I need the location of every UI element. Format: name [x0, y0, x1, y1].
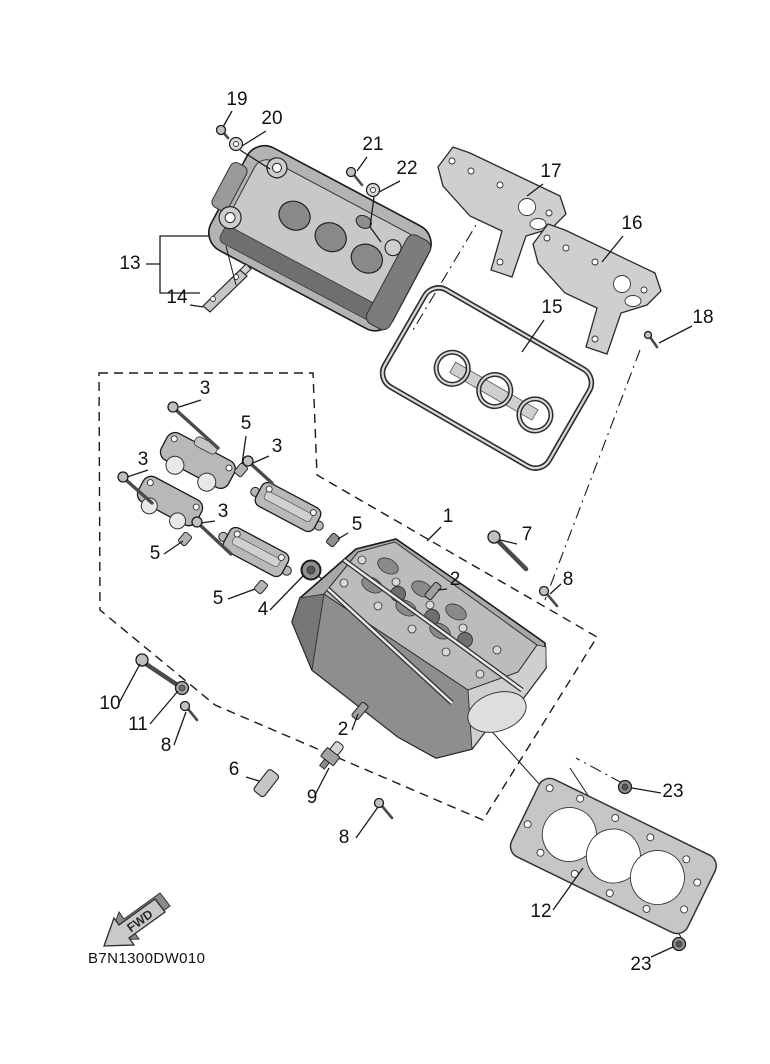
- leader-3c: [127, 470, 148, 477]
- bracket-part: [203, 264, 251, 312]
- callout-8c: 8: [339, 827, 350, 848]
- bolt-8b: [181, 702, 198, 721]
- callout-19: 19: [226, 89, 247, 110]
- washer-20: [230, 138, 243, 151]
- leader-18: [659, 326, 692, 343]
- callout-11: 11: [128, 714, 148, 735]
- centerline: [576, 758, 622, 783]
- bolt-boss: [392, 578, 400, 586]
- callout-18: 18: [692, 307, 713, 328]
- callout-17: 17: [540, 161, 561, 182]
- bolt-10: [136, 654, 176, 684]
- heat-shield-plate-16: [533, 224, 661, 354]
- bolt-boss: [476, 670, 484, 678]
- callout-8a: 8: [563, 569, 574, 590]
- callout-22: 22: [396, 158, 417, 179]
- leader-6: [246, 777, 259, 781]
- dowel-pin-5d: [254, 580, 269, 595]
- callout-16: 16: [621, 213, 642, 234]
- head-bolt-7: [488, 531, 526, 569]
- callout-3d: 3: [218, 501, 229, 522]
- cam-cap-c: [246, 477, 330, 538]
- bolt-boss: [442, 648, 450, 656]
- bolt-boss: [459, 624, 467, 632]
- callout-5a: 5: [241, 413, 252, 434]
- bolt-boss: [426, 601, 434, 609]
- leader-8a: [550, 584, 561, 594]
- callout-23a: 23: [662, 781, 683, 802]
- leader-3d: [201, 521, 215, 523]
- leader-5b: [338, 533, 348, 539]
- dowel-pin-5b: [326, 533, 341, 548]
- callout-13: 13: [119, 253, 140, 274]
- callout-8b: 8: [161, 735, 172, 756]
- washer-22: [367, 184, 380, 197]
- leader-8c: [356, 807, 378, 838]
- callout-9: 9: [307, 787, 318, 808]
- leader-20: [242, 131, 266, 146]
- callout-5b: 5: [352, 514, 363, 535]
- gasket-band: [450, 362, 538, 420]
- callout-23b: 23: [630, 954, 651, 975]
- callout-2b: 2: [338, 719, 349, 740]
- bracket-hole: [211, 297, 216, 302]
- callout-21: 21: [362, 134, 383, 155]
- leader-3b: [253, 456, 269, 463]
- leader-14: [190, 305, 203, 307]
- leader-10: [119, 664, 140, 703]
- screw-18: [645, 332, 658, 348]
- leader-21: [357, 157, 367, 171]
- spark-plug-9: [316, 739, 347, 772]
- callout-4: 4: [258, 599, 269, 620]
- callout-3c: 3: [138, 449, 149, 470]
- bolt-21: [347, 168, 363, 186]
- plug-4: [302, 561, 321, 580]
- dowel-6: [253, 768, 280, 797]
- callout-7: 7: [522, 524, 533, 545]
- callout-1: 1: [443, 506, 454, 527]
- drawing-code: B7N1300DW010: [88, 950, 205, 967]
- callout-5c: 5: [150, 543, 161, 564]
- leader-3a: [179, 400, 201, 407]
- leader-11: [150, 691, 178, 724]
- exploded-parts-diagram: 19 20 21 22 17 16 18 15 13 14 3 5 3 3 3 …: [0, 0, 770, 1064]
- callout-14: 14: [166, 287, 188, 308]
- leader-22: [379, 181, 400, 192]
- leader-5d: [228, 589, 255, 599]
- bolt-boss: [493, 646, 501, 654]
- callout-10: 10: [99, 693, 120, 714]
- callout-12: 12: [530, 901, 551, 922]
- leader-19: [223, 111, 232, 127]
- bolt-boss: [408, 625, 416, 633]
- callout-5d: 5: [213, 588, 224, 609]
- callout-6: 6: [229, 759, 240, 780]
- bolt-boss: [340, 579, 348, 587]
- bracket-strip: [203, 270, 247, 312]
- callout-3b: 3: [272, 436, 283, 457]
- bolt-19: [217, 126, 229, 139]
- callout-15: 15: [541, 297, 562, 318]
- leader-23a: [632, 788, 661, 793]
- callout-3a: 3: [200, 378, 211, 399]
- valve-cover-gasket-part: [377, 282, 598, 474]
- bolt-boss: [358, 556, 366, 564]
- dowel-pin-5c: [178, 532, 193, 547]
- nut-23a: [619, 781, 632, 794]
- leader-1: [427, 527, 441, 541]
- leader-23b: [651, 947, 673, 957]
- callout-20: 20: [261, 108, 282, 129]
- leader-8b: [174, 712, 186, 745]
- fwd-arrow: FWD: [104, 893, 170, 946]
- callout-2a: 2: [450, 569, 461, 590]
- parts-diagram-page: 19 20 21 22 17 16 18 15 13 14 3 5 3 3 3 …: [0, 0, 770, 1064]
- leader-13-bracket: [146, 236, 209, 264]
- nut-23b: [673, 938, 686, 951]
- cylinder-head-part: [292, 539, 546, 758]
- leader-5c: [164, 541, 183, 554]
- bolt-boss: [374, 602, 382, 610]
